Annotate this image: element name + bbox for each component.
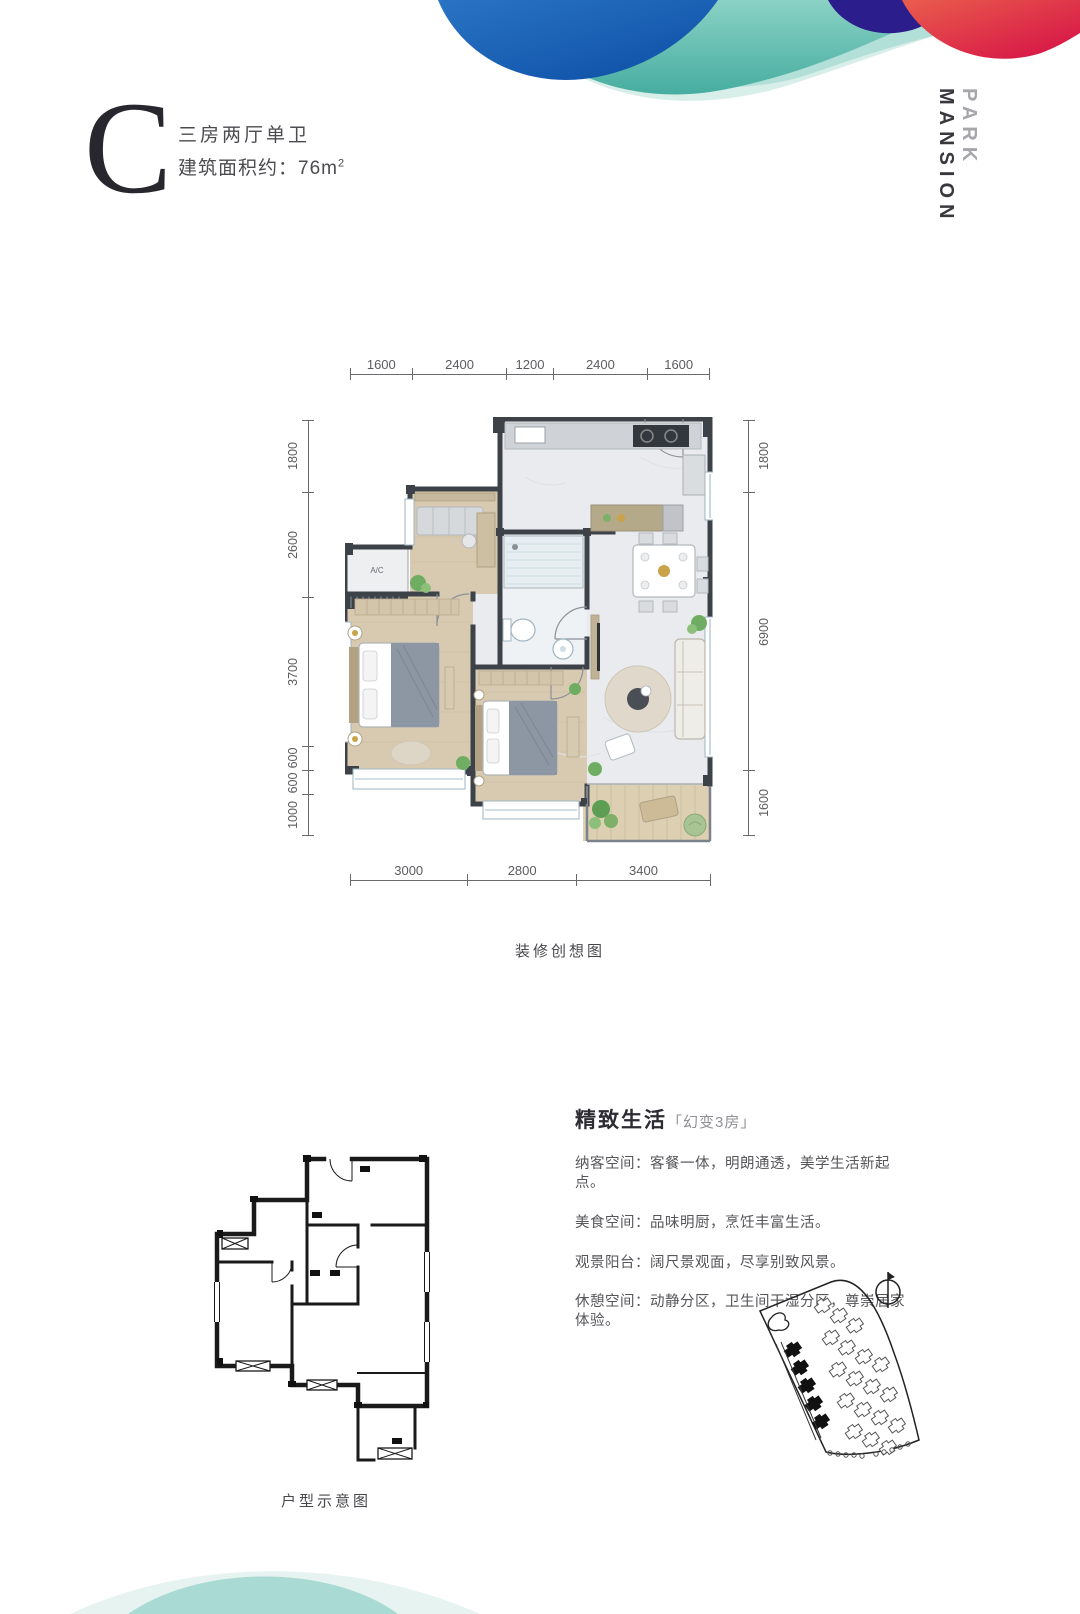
schematic-plan [212, 1152, 440, 1470]
schematic-markers [217, 1155, 429, 1444]
brochure-page: C 三房两厅单卫 建筑面积约：76m2 PARK MANSION 1600 24… [0, 0, 1080, 1614]
dim-segment: 2600 [284, 493, 309, 598]
brand-word-mansion: MANSION [934, 88, 957, 288]
dim-segment: 1800 [748, 420, 773, 493]
brand-word-park: PARK [957, 88, 980, 288]
dim-segment: 2400 [413, 352, 507, 375]
bottom-wave-decoration [0, 1556, 1080, 1614]
dim-segment: 600 [284, 746, 309, 770]
dim-segment: 2800 [467, 858, 577, 881]
dim-segment: 3400 [577, 858, 710, 881]
dim-segment: 6900 [748, 493, 773, 771]
schematic-caption: 户型示意图 [212, 1490, 440, 1511]
features-title: 精致生活 [575, 1109, 667, 1132]
dim-segment: 1800 [284, 420, 309, 493]
dim-segment: 1000 [284, 795, 309, 835]
svg-text:A/C: A/C [370, 566, 384, 575]
dimension-col-left: 1800 2600 3700 600 600 1000 [284, 420, 308, 835]
dim-segment: 3700 [284, 597, 309, 746]
dimension-row-bottom: 3000 2800 3400 [350, 858, 710, 881]
floorplan-render: A/C [345, 417, 713, 849]
dim-segment: 1200 [507, 352, 554, 375]
brand-vertical-logo: PARK MANSION [934, 88, 980, 288]
dimension-col-right: 1800 6900 1600 [748, 420, 772, 835]
schematic-door-arcs [272, 1159, 358, 1282]
unit-type-label: 三房两厅单卫 [178, 120, 310, 147]
floorplan-caption: 装修创想图 [392, 940, 728, 961]
area-superscript: 2 [338, 158, 345, 170]
wave-red [902, 0, 1080, 59]
dim-segment: 2400 [553, 352, 647, 375]
features-subtitle: 「幻变3房」 [667, 1114, 756, 1131]
feature-item: 美食空间：品味明厨，烹饪丰富生活。 [575, 1214, 915, 1233]
features-title-line: 精致生活「幻变3房」 [575, 1104, 915, 1134]
dim-segment: 1600 [647, 352, 710, 375]
dim-segment: 600 [284, 771, 309, 795]
compass-icon [876, 1272, 900, 1308]
site-plan [726, 1260, 926, 1460]
area-text: 建筑面积约：76m [178, 158, 338, 179]
dim-segment: 1600 [350, 352, 413, 375]
dim-segment: 1600 [748, 771, 773, 835]
unit-letter: C [84, 82, 172, 214]
feature-item: 纳客空间：客餐一体，明朗通透，美学生活新起点。 [575, 1155, 915, 1193]
dim-segment: 3000 [350, 858, 467, 881]
site-buildings [813, 1296, 908, 1458]
schematic-windows [213, 1238, 431, 1459]
dimension-row-top: 1600 2400 1200 2400 1600 [350, 352, 710, 375]
unit-area-label: 建筑面积约：76m2 [178, 153, 345, 180]
site-pond [768, 1313, 789, 1331]
